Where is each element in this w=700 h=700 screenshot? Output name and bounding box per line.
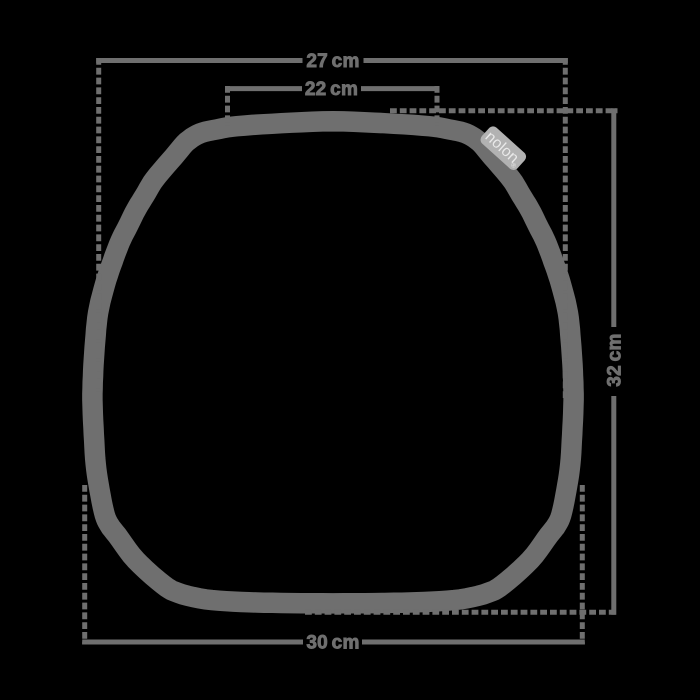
svg-text:22 cm: 22 cm (305, 79, 358, 100)
svg-text:27 cm: 27 cm (306, 51, 359, 72)
svg-text:30 cm: 30 cm (306, 633, 359, 654)
svg-text:32 cm: 32 cm (605, 333, 626, 386)
